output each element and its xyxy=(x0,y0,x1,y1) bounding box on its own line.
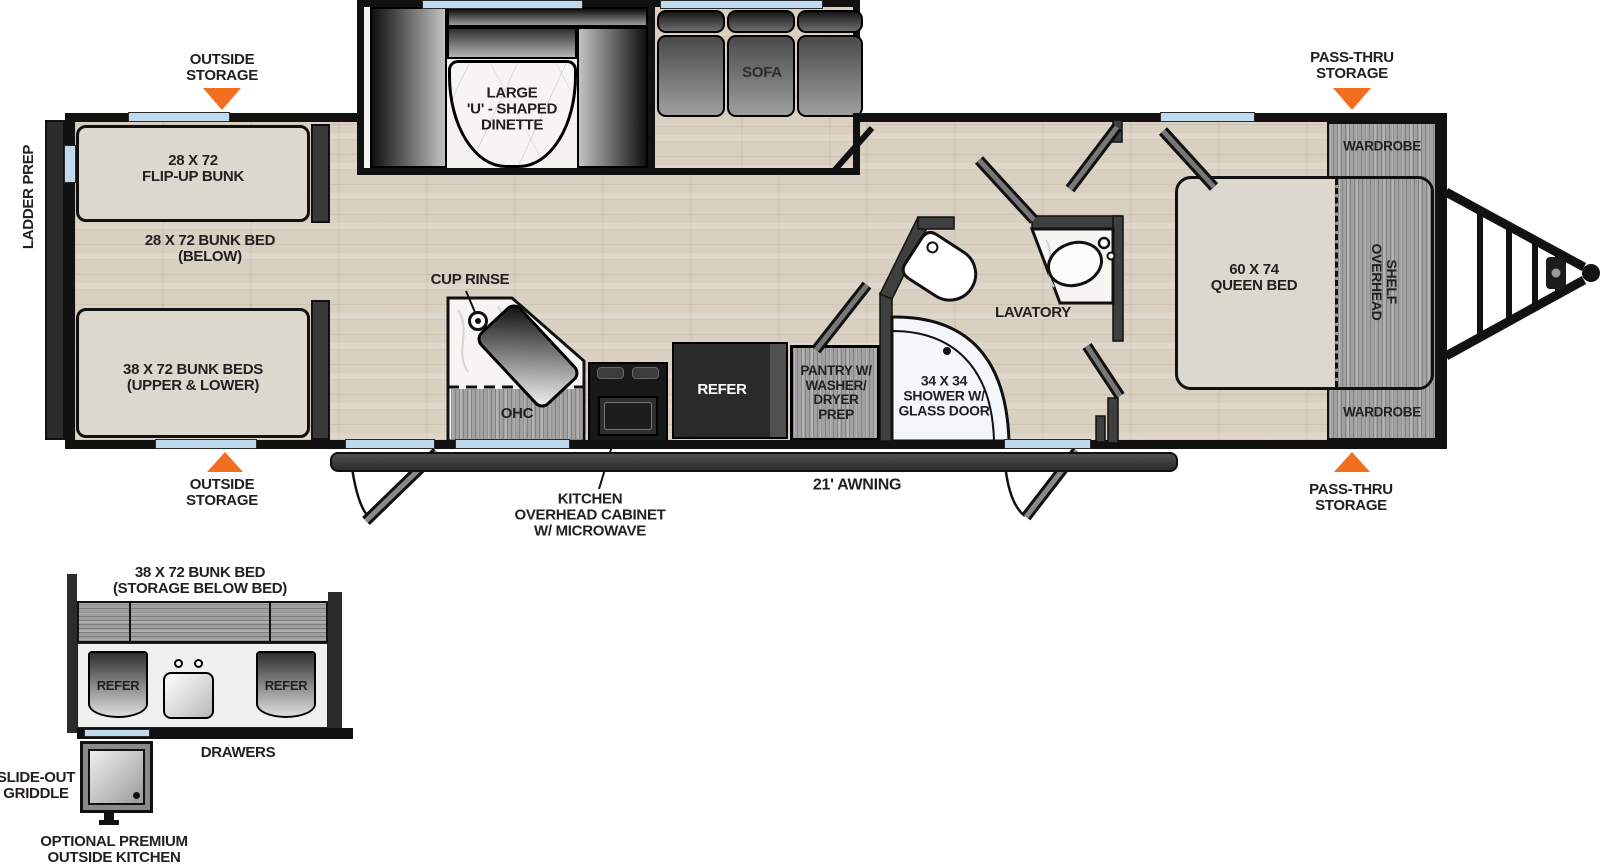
ok-refer-right-label: REFER xyxy=(265,679,308,693)
ok-griddle-label: SLIDE-OUT GRIDDLE xyxy=(0,770,75,802)
window xyxy=(1160,112,1255,122)
outside-storage-bottom-label: OUTSIDE STORAGE xyxy=(186,477,258,509)
flip-up-bunk-label: 28 X 72 FLIP-UP BUNK xyxy=(142,153,244,185)
window xyxy=(455,439,570,449)
lavatory-label: LAVATORY xyxy=(995,305,1071,321)
wall-right xyxy=(1437,113,1447,449)
sofa-back-cushion xyxy=(797,10,863,33)
awning-label: 21' AWNING xyxy=(813,476,901,493)
stove-burner xyxy=(632,367,659,379)
entry-door-window xyxy=(1004,439,1091,449)
ok-window xyxy=(84,729,150,737)
ok-bunk-band xyxy=(77,601,328,643)
ok-left-wall xyxy=(67,574,77,733)
ok-drawers-label: DRAWERS xyxy=(201,745,276,761)
ok-bunk-divider xyxy=(129,601,131,643)
pass-thru-bottom-label: PASS-THRU STORAGE xyxy=(1309,482,1393,514)
refer-label: REFER xyxy=(697,382,746,398)
outside-kitchen-bunk-label: 38 X 72 BUNK BED (STORAGE BELOW BED) xyxy=(113,565,287,597)
ok-sink xyxy=(163,672,214,719)
hitch xyxy=(1446,192,1584,356)
window xyxy=(660,0,823,9)
sofa-back-cushion xyxy=(657,10,725,33)
ok-griddle-foot xyxy=(99,820,119,825)
ok-refer-left-label: REFER xyxy=(97,679,140,693)
wardrobe-bottom-label: WARDROBE xyxy=(1343,406,1421,421)
outside-storage-bottom-arrow-icon xyxy=(207,452,243,472)
sofa-label: SOFA xyxy=(742,65,782,81)
ok-title-label: OPTIONAL PREMIUM OUTSIDE KITCHEN xyxy=(40,834,187,864)
sofa-seat-cushion xyxy=(657,35,725,117)
ok-faucet-icon xyxy=(174,659,183,668)
ohc-label: OHC xyxy=(501,406,533,422)
window xyxy=(155,439,257,449)
pass-thru-top-label: PASS-THRU STORAGE xyxy=(1310,50,1394,82)
dinette-bench-top xyxy=(447,27,577,59)
shower-label: 34 X 34 SHOWER W/ GLASS DOOR xyxy=(898,373,989,418)
wall-top-right xyxy=(853,113,1447,122)
stove-oven-door xyxy=(604,402,652,430)
bunk-beds-label: 38 X 72 BUNK BEDS (UPPER & LOWER) xyxy=(123,362,263,394)
hitch-ball-icon xyxy=(1582,264,1600,282)
sofa-seat-cushion xyxy=(797,35,863,117)
dinette-bench-right xyxy=(577,27,648,168)
ok-bunk-divider xyxy=(269,601,271,643)
floorplan-page: LADDER PREP LARGE 'U' - SHAPED DINETTE S… xyxy=(0,0,1600,864)
wall-bottom xyxy=(65,440,1447,449)
cup-rinse-label: CUP RINSE xyxy=(431,272,510,288)
bunk-wall-lower xyxy=(311,300,330,440)
window xyxy=(64,145,76,183)
bunk-wall-upper xyxy=(311,124,330,223)
kitchen-cabinet-label: KITCHEN OVERHEAD CABINET W/ MICROWAVE xyxy=(514,492,665,541)
stove-burner xyxy=(597,367,624,379)
dinette-bench-back xyxy=(447,7,648,27)
window xyxy=(128,112,230,122)
awning-bar xyxy=(330,452,1178,472)
pass-thru-top-arrow-icon xyxy=(1333,88,1371,110)
hitch-jack xyxy=(1546,257,1566,289)
outside-storage-top-arrow-icon xyxy=(203,88,241,110)
queen-bed-label: 60 X 74 QUEEN BED xyxy=(1211,262,1297,294)
overhead-shelf-label: OVERHEAD SHELF xyxy=(1369,244,1399,321)
sofa-back-cushion xyxy=(727,10,795,33)
ok-griddle-knob-icon xyxy=(133,792,140,799)
wardrobe-top-label: WARDROBE xyxy=(1343,140,1421,155)
ok-right-wall xyxy=(328,592,342,733)
refrigerator-side xyxy=(770,344,786,437)
pass-thru-bottom-arrow-icon xyxy=(1334,452,1370,472)
dinette-bench-left xyxy=(370,7,447,168)
outside-storage-top-label: OUTSIDE STORAGE xyxy=(186,52,258,84)
ok-faucet-icon xyxy=(194,659,203,668)
ladder-prep-bar xyxy=(45,120,65,440)
window xyxy=(422,0,583,9)
ladder-prep-label: LADDER PREP xyxy=(21,145,37,249)
dinette-label: LARGE 'U' - SHAPED DINETTE xyxy=(467,86,557,135)
slideout-divider xyxy=(648,4,655,172)
bunk-below-label: 28 X 72 BUNK BED (BELOW) xyxy=(145,233,275,265)
pantry-label: PANTRY W/ WASHER/ DRYER PREP xyxy=(800,364,871,422)
entry-door-window xyxy=(345,439,435,449)
